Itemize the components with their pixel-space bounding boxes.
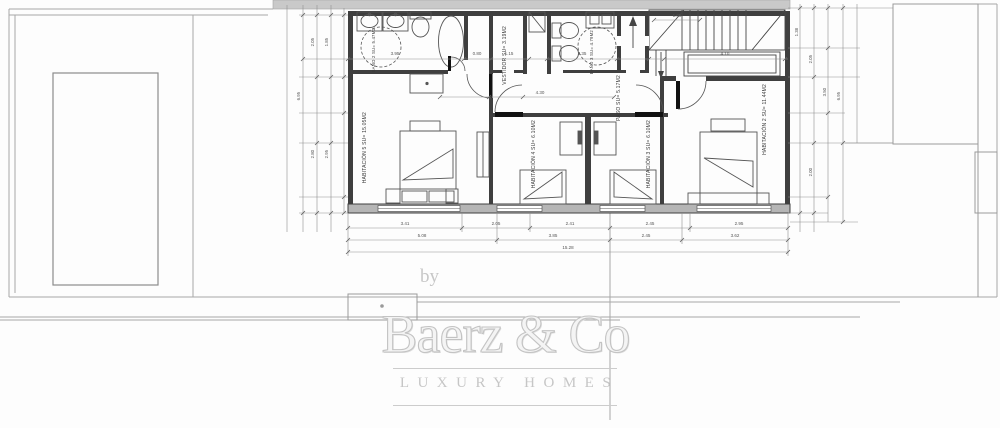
room-label-habitacion3: HABITACIÓN 3 SU= 6.10M2	[646, 120, 653, 188]
dim-label: 2.05	[492, 221, 501, 226]
room-name: HABITACIÓN 3	[646, 152, 652, 189]
room-label-circle	[361, 27, 401, 67]
room-label-bano2: BAÑO 2 SU= 5.47M2	[371, 28, 377, 72]
dim-label: 2.41	[566, 221, 575, 226]
door-leaf	[635, 112, 663, 117]
dim-label-total: 15.28	[562, 245, 573, 250]
dim-label: 2.05	[310, 38, 315, 46]
room-area: SU= 15.05M2	[362, 112, 368, 145]
dim-label: 5.08	[418, 233, 427, 238]
dim-label: 3.50	[822, 88, 827, 96]
staircase	[649, 10, 785, 79]
dim-label: 4.10	[721, 51, 730, 56]
dim-label: 3.41	[401, 221, 410, 226]
door-leaf	[676, 81, 680, 109]
watermark-tagline: LUXURY HOMES	[368, 375, 643, 392]
room-area: SU= 6.10M2	[531, 120, 537, 150]
room-label-habitacion5: HABITACIÓN 5 SU= 15.05M2	[362, 112, 369, 183]
room-area: SU= 4.79M2	[589, 30, 594, 56]
dim-label: 1.85	[324, 38, 329, 46]
room-name: HABITACIÓN 4	[531, 152, 537, 189]
cabinet-fixture	[410, 74, 443, 93]
room-name: PASO	[616, 107, 622, 121]
room-name: BAÑO 3	[589, 57, 594, 74]
room-area: SU= 6.10M2	[646, 120, 652, 150]
door-arc	[636, 85, 663, 112]
roof-band	[273, 0, 790, 9]
up-arrow-icon	[629, 16, 637, 26]
bed-habitacion5	[386, 121, 458, 203]
floor-plan-page: BAÑO 2 SU= 5.47M2 HABITACIÓN 5 SU= 15.05…	[0, 0, 1000, 428]
interior-walls	[348, 11, 785, 204]
door-arc	[678, 81, 706, 109]
dim-label: 6.95	[296, 92, 301, 100]
door-leaf	[489, 74, 493, 98]
dim-label: 2.45	[646, 221, 655, 226]
watermark-by: by	[420, 266, 439, 288]
dim-label: 3.85	[549, 233, 558, 238]
room-area: SU= 11.44M2	[762, 84, 768, 117]
dim-label: 3.95	[391, 51, 400, 56]
toilet-fixture	[552, 23, 579, 39]
room-name: HABITACIÓN 5	[362, 147, 368, 184]
door-arc	[495, 85, 522, 112]
room-area: SU= 5.17M2	[616, 75, 622, 105]
door-leaf	[448, 56, 451, 71]
exterior-walls	[348, 11, 790, 213]
bathroom3-fixtures	[529, 12, 616, 65]
room-name: VESTIDOR	[502, 58, 508, 85]
dim-label: 2.05	[808, 55, 813, 63]
room-label-bano3: BAÑO 3 SU= 4.79M2	[589, 30, 595, 74]
dim-label: 1.38	[794, 28, 799, 36]
wardrobe-habitacion5	[477, 132, 489, 177]
room-name: BAÑO 2	[371, 55, 376, 72]
dim-label: 2.35	[578, 51, 587, 56]
dim-label: 1.05	[673, 13, 682, 18]
dim-label: 0.80	[473, 51, 482, 56]
watermark-brand: Baerz & Co	[368, 303, 643, 365]
shower-cabin	[617, 16, 649, 48]
watermark-rule-2	[393, 405, 617, 406]
bed-habitacion4	[520, 170, 566, 204]
dim-label: 2.95	[735, 221, 744, 226]
pool	[53, 73, 158, 285]
room-label-habitacion2: HABITACIÓN 2 SU= 11.44M2	[762, 84, 769, 155]
dim-label: 6.95	[836, 92, 841, 100]
dim-label: 2.95	[324, 150, 329, 158]
bed-habitacion2	[688, 119, 769, 204]
dim-label: 4.30	[536, 90, 545, 95]
dim-label: 2.80	[310, 150, 315, 158]
terrace	[893, 4, 997, 297]
dim-label: 3.62	[731, 233, 740, 238]
dim-label: 2.00	[808, 168, 813, 176]
room-label-habitacion4: HABITACIÓN 4 SU= 6.10M2	[531, 120, 538, 188]
room-name: HABITACIÓN 2	[762, 118, 768, 155]
bottom-wall	[348, 204, 790, 213]
dim-label: 2.45	[642, 233, 651, 238]
watermark-rule	[393, 368, 617, 369]
doors	[448, 56, 706, 117]
dim-label: 1.15	[505, 51, 514, 56]
door-leaf	[495, 112, 523, 117]
room-label-paso: PASO SU= 5.17M2	[616, 75, 623, 121]
room-area: SU= 5.47M2	[371, 28, 376, 54]
door-arc	[467, 74, 491, 98]
